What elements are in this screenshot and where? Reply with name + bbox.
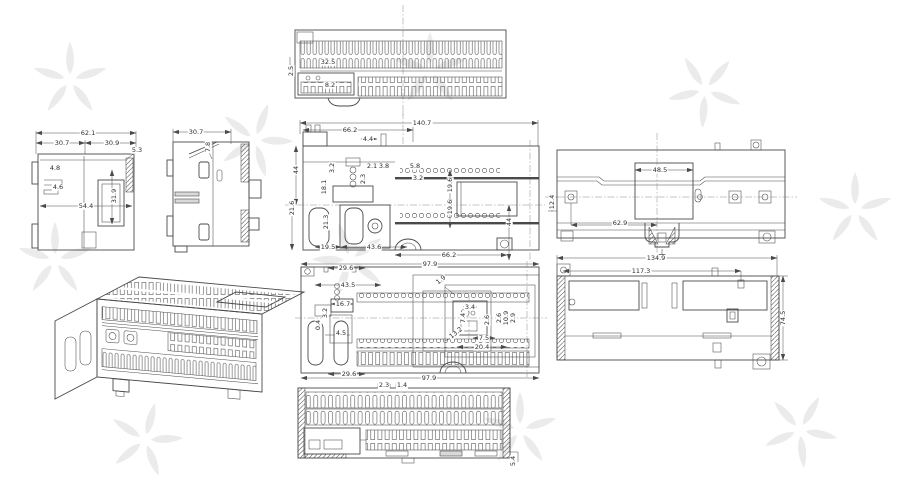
- right-pocket: [457, 182, 517, 216]
- left-block: [304, 428, 360, 454]
- dim-label: 5.8: [409, 163, 421, 170]
- dim-label: 16.7: [335, 301, 351, 308]
- dim-label: 29.6: [338, 265, 354, 272]
- dim-label: 30.7: [54, 140, 70, 147]
- pcb-bar-bottom: [395, 222, 539, 224]
- dim-label: 32.5: [320, 59, 336, 66]
- dim-label: 44: [293, 165, 300, 175]
- dim-label: 29.6: [341, 371, 357, 378]
- hatched-rib-top: [241, 144, 249, 182]
- dim-label: 3.2: [322, 307, 329, 319]
- dim-label: 7.8: [205, 141, 212, 153]
- dim-label: 31.9: [111, 188, 118, 204]
- dim-label: 2.9: [510, 312, 517, 324]
- corner-hole: [561, 267, 567, 273]
- dim-label: 8.2: [324, 82, 336, 89]
- dim-label: 21.6: [289, 200, 296, 216]
- iso-front-details: [102, 307, 258, 409]
- top-connector: [303, 132, 327, 146]
- bottom-arch: [395, 239, 421, 250]
- left-rail: [557, 276, 565, 360]
- dim-label: 20.4: [474, 344, 490, 351]
- boss-circle: [368, 219, 382, 233]
- dim-label: 19.6: [447, 177, 454, 193]
- side-lug: [249, 180, 261, 198]
- dim-label: 3.8: [378, 163, 390, 170]
- dim-label: 1.4: [396, 382, 408, 389]
- inner-block: [333, 186, 373, 202]
- rear-view-drawing: [545, 133, 797, 257]
- dim-label: 117.3: [631, 268, 652, 275]
- dim-label: 7.5: [478, 335, 490, 342]
- dim-label: 2.6: [484, 314, 491, 326]
- hatched-rib-bottom: [241, 210, 249, 242]
- screw-hole: [501, 240, 509, 248]
- dim-label: 66.2: [342, 127, 358, 134]
- isometric-view-drawing: [18, 265, 308, 455]
- tray-bay-left: [569, 281, 639, 310]
- dim-label: 5.4: [510, 455, 517, 467]
- dim-label: 44: [506, 217, 513, 227]
- section-outline: [303, 146, 539, 250]
- dim-label: 43.6: [366, 244, 382, 251]
- tray-bay-right: [683, 281, 767, 310]
- dim-label: 3.4: [464, 304, 476, 311]
- dim-label: 4.6: [52, 184, 64, 191]
- dim-label: 2.1: [366, 163, 378, 170]
- iso-relay-slot-b: [80, 331, 91, 365]
- clip-bottom: [199, 224, 209, 240]
- dim-label: 2.3: [360, 173, 367, 185]
- hatched-wall: [126, 158, 133, 192]
- terminal-strip: [357, 351, 529, 366]
- right-rail: [503, 388, 510, 458]
- top-pin: [381, 134, 386, 146]
- dim-label: 43.5: [340, 282, 356, 289]
- dim-label: 62.1: [80, 130, 96, 137]
- dim-label: 2.5: [288, 65, 295, 77]
- dim-label: 97.9: [422, 261, 438, 268]
- dim-label: 12.4: [549, 194, 556, 210]
- dim-label: 3.2: [412, 175, 424, 182]
- dim-label: 19.5: [320, 244, 336, 251]
- dim-label: 21.3: [323, 214, 330, 230]
- iso-relay-slot-a: [65, 337, 76, 371]
- tray-outline: [557, 276, 779, 360]
- shelf-bottom: [175, 199, 199, 203]
- dim-label: 7.4: [460, 312, 467, 324]
- rail-tab-bottom: [167, 216, 173, 236]
- dim-label: 54.4: [78, 203, 94, 210]
- bottom-view-drawing: [290, 378, 532, 483]
- dim-label: 4.8: [49, 165, 61, 172]
- contact-row-bottom: [357, 339, 529, 348]
- dim-label: 18.1: [321, 179, 328, 195]
- relay-pocket-mid: [345, 208, 363, 244]
- dim-label: 19.6: [447, 199, 454, 215]
- dim-label: 66.2: [441, 252, 457, 259]
- dim-label: 134.9: [646, 255, 667, 262]
- foot: [175, 246, 187, 252]
- dim-label: 5.3: [131, 147, 143, 154]
- dim-label: 140.7: [412, 120, 433, 127]
- side-profile-view-drawing: [165, 116, 271, 254]
- mechanism-box: [340, 205, 390, 248]
- dim-label: 2.3: [378, 382, 390, 389]
- terminal-row: [358, 77, 502, 96]
- clip-top: [199, 162, 209, 178]
- shelf-top: [175, 192, 199, 196]
- dim-label: 4.5: [335, 330, 347, 337]
- bottom-tab: [328, 98, 360, 106]
- dim-label: 48.5: [652, 167, 668, 174]
- dim-label: 97.9: [421, 375, 437, 382]
- left-flange-bottom: [32, 224, 38, 248]
- rail-tab-top: [167, 160, 173, 176]
- dim-label: 4.4: [362, 136, 374, 143]
- tray-view-drawing: [545, 248, 797, 380]
- left-flange-top: [32, 162, 38, 184]
- dim-label: 62.9: [612, 220, 628, 227]
- vent-oval-row-1: [306, 392, 502, 408]
- dim-label: 30.7: [188, 129, 204, 136]
- terminal-slot-row: [366, 430, 502, 450]
- contact-row-top: [357, 293, 529, 302]
- dim-label: 74.5: [780, 310, 787, 326]
- dim-label: 0.4: [315, 319, 322, 331]
- dim-label: 3.2: [329, 162, 336, 174]
- dim-label: 30.9: [104, 140, 120, 147]
- vent-oval-row-2: [306, 409, 502, 425]
